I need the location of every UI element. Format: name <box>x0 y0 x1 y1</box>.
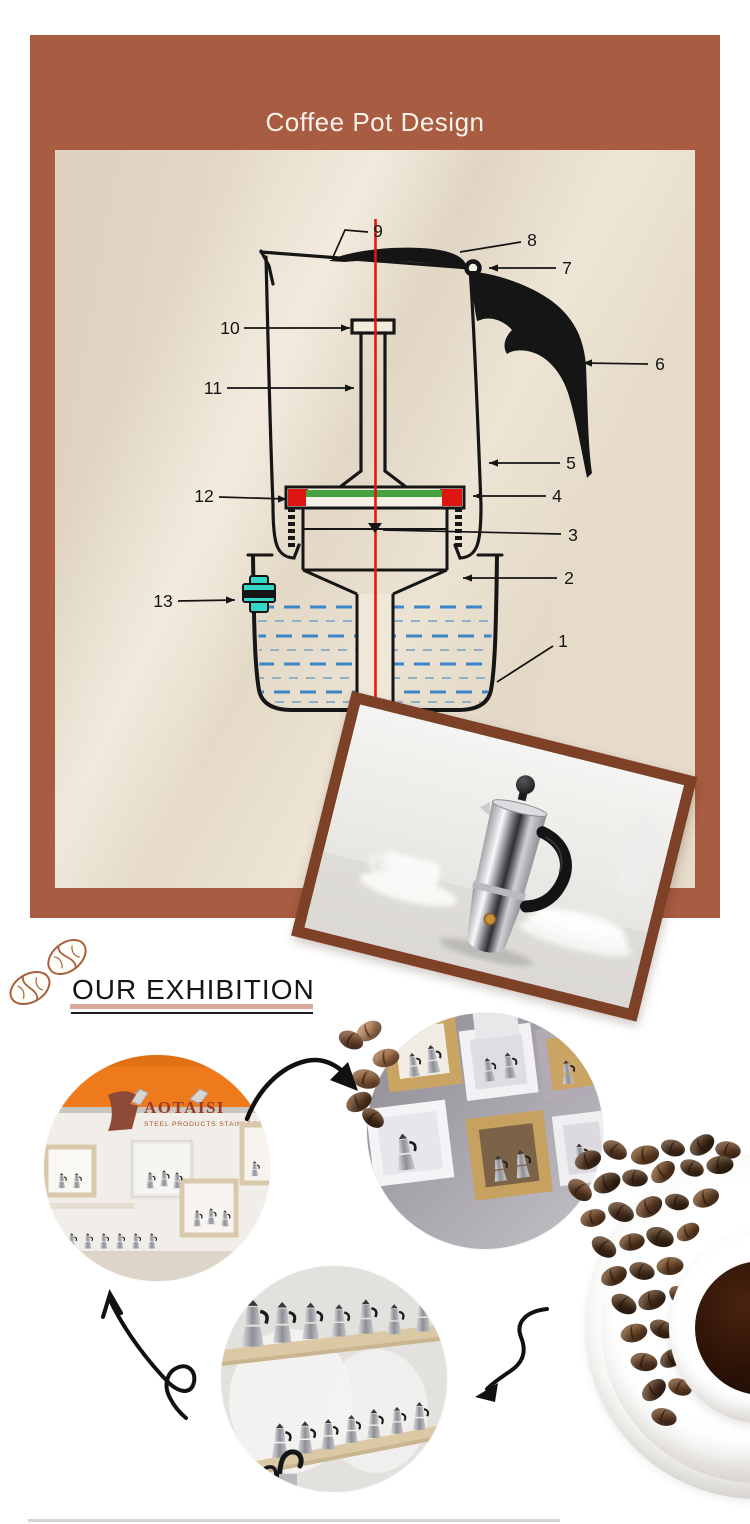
heading-underline-black <box>71 1012 313 1014</box>
loop-arrow-icon <box>110 1300 194 1418</box>
section-divider <box>28 1519 560 1522</box>
exhibition-photo-shelves <box>221 1266 447 1492</box>
coffee-bean <box>578 1206 607 1229</box>
squiggle-arrow-icon <box>487 1309 547 1389</box>
page: Coffee Pot Design <box>0 0 750 1524</box>
coffee-bean <box>353 1016 385 1045</box>
coffee-bean <box>659 1137 687 1159</box>
coffee-bean <box>629 1143 660 1167</box>
exhibition-photo-cube-wall <box>367 1013 603 1249</box>
exhibition-heading: OUR EXHIBITION <box>72 974 315 1006</box>
exhibition-photo-booth: AOTAISI STEEL PRODUCTS STAINLESS <box>44 1055 270 1281</box>
page-title: Coffee Pot Design <box>30 107 720 138</box>
curved-arrow-icon <box>247 1060 341 1119</box>
coffee-bean <box>621 1168 648 1187</box>
heading-underline-pink <box>70 1004 313 1009</box>
coffee-bean <box>600 1136 631 1164</box>
svg-text:AOTAISI: AOTAISI <box>144 1098 225 1117</box>
coffee-bean <box>686 1130 718 1160</box>
coffee-bean <box>336 1027 366 1053</box>
